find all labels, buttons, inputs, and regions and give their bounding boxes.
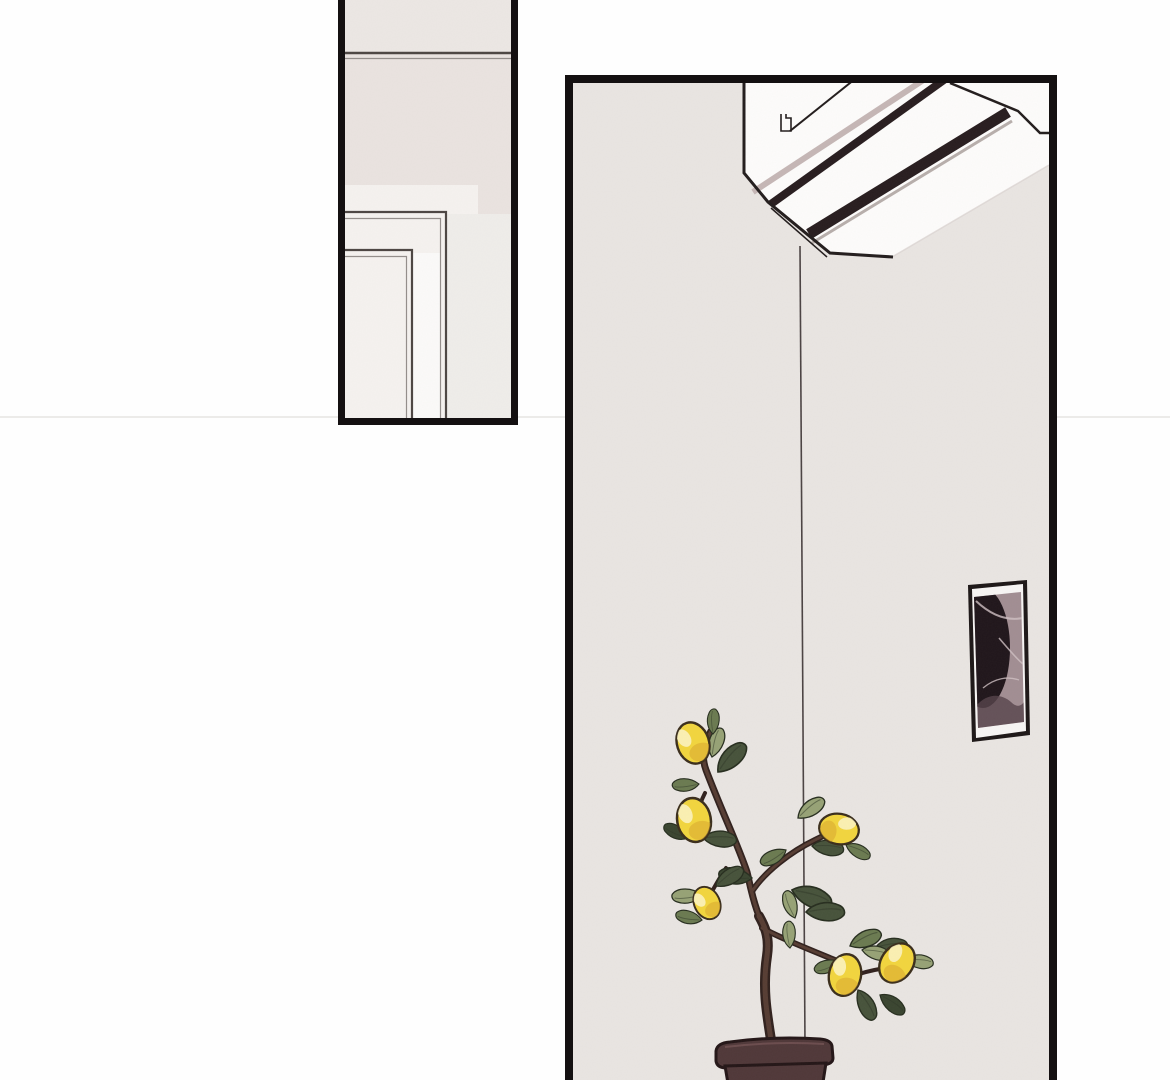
paper-grain <box>573 83 1049 1080</box>
room-illustration <box>573 83 1049 1080</box>
panel-room <box>565 75 1057 1080</box>
doorway-illustration <box>345 0 511 418</box>
paper-grain <box>345 0 511 418</box>
panel-doorway <box>338 0 518 425</box>
comic-page <box>0 0 1170 1080</box>
